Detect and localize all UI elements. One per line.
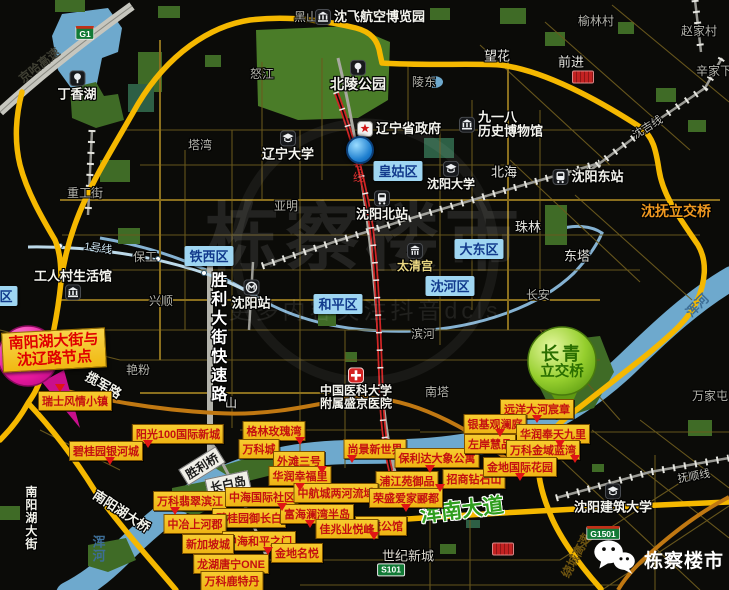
poi-label: 九一八历史博物馆 bbox=[478, 111, 543, 140]
poi-label: 北陵公园 bbox=[330, 77, 386, 92]
pointer-triangle bbox=[495, 429, 505, 437]
poi: 沈阳建筑大学 bbox=[574, 483, 652, 514]
pointer-triangle bbox=[55, 384, 65, 392]
poi: 丁香湖 bbox=[57, 70, 96, 101]
museum-icon bbox=[65, 285, 81, 301]
street-label: 塔湾 bbox=[188, 139, 212, 153]
pointer-triangle bbox=[305, 520, 315, 528]
poi-label: 中国医科大学附属盛京医院 bbox=[320, 384, 392, 410]
train-icon bbox=[552, 169, 568, 185]
museum-icon bbox=[315, 9, 331, 25]
pointer-triangle bbox=[369, 532, 379, 540]
poi: 辽宁省政府 bbox=[357, 121, 441, 137]
poi-label: 沈阳站 bbox=[231, 296, 270, 310]
street-label: 山 bbox=[225, 397, 237, 411]
project-label: 万科鹿特丹 bbox=[201, 571, 264, 590]
street-label: 怒江 bbox=[250, 68, 274, 82]
district-label: 和平区 bbox=[313, 294, 362, 314]
street-label: 保工 bbox=[133, 251, 157, 265]
poi: 沈阳东站 bbox=[552, 169, 623, 185]
school-icon bbox=[443, 161, 459, 177]
pointer-triangle bbox=[295, 437, 305, 445]
street-label: 东塔 bbox=[564, 250, 590, 265]
park-icon bbox=[69, 70, 85, 86]
poi: 沈阳北站 bbox=[356, 190, 408, 221]
pointer-triangle bbox=[277, 503, 287, 511]
pointer-triangle bbox=[425, 465, 435, 473]
road-label: 胜利大街快速路 bbox=[207, 272, 225, 405]
callout-changqing-line2: 立交桥 bbox=[540, 364, 584, 380]
road-badge bbox=[572, 71, 594, 84]
park-icon bbox=[350, 60, 366, 76]
poi: 沈飞航空博览园 bbox=[315, 9, 425, 25]
project-label: 中冶上河郡 bbox=[164, 514, 227, 534]
callout-changqing-line1: 长青 bbox=[540, 344, 584, 364]
poi: 辽宁大学 bbox=[262, 130, 314, 161]
wechat-branding: 栋察楼市 bbox=[592, 538, 724, 580]
pointer-triangle bbox=[401, 504, 411, 512]
district-label: 区 bbox=[0, 286, 18, 306]
poi: 九一八历史博物馆 bbox=[459, 111, 543, 140]
street-label: 亚明 bbox=[274, 200, 298, 214]
pointer-triangle bbox=[555, 440, 565, 448]
street-label: 陵东 bbox=[412, 76, 436, 90]
road-label: 浑河 bbox=[90, 535, 105, 563]
street-label: 南塔 bbox=[425, 386, 449, 400]
project-label: 中航城两河流域 bbox=[294, 483, 379, 503]
poi: 北陵公园 bbox=[330, 60, 386, 92]
street-label: 万家屯 bbox=[692, 390, 728, 404]
pointer-triangle bbox=[317, 466, 327, 474]
metro-icon bbox=[243, 279, 259, 295]
district-label: 铁西区 bbox=[184, 246, 233, 266]
street-label: 辛家下 bbox=[696, 65, 729, 79]
road-label: 南阳湖大街 bbox=[23, 486, 37, 551]
street-label: 兴顺 bbox=[149, 295, 173, 309]
callout-changqing: 长青 立交桥 bbox=[540, 344, 584, 380]
wechat-icon bbox=[592, 538, 638, 580]
shenyang-night-map: 栋察楼市 更多内容关注抖音dcls 黑山怒江塔湾重工街亚明保工兴顺艳粉陵东望花前… bbox=[0, 0, 729, 590]
poi-label: 沈阳北站 bbox=[356, 207, 408, 221]
poi-label: 丁香湖 bbox=[57, 87, 96, 101]
pointer-triangle bbox=[143, 440, 153, 448]
street-label: 世纪新城 bbox=[382, 550, 434, 565]
temple-icon bbox=[407, 243, 423, 259]
hospital-icon bbox=[348, 367, 364, 383]
street-label: 艳粉 bbox=[126, 364, 150, 378]
train-icon bbox=[374, 190, 390, 206]
poi: 沈阳大学 bbox=[427, 161, 475, 191]
pointer-triangle bbox=[170, 507, 180, 515]
poi-label: 沈阳建筑大学 bbox=[574, 500, 652, 514]
district-label: 大东区 bbox=[454, 239, 503, 259]
school-icon bbox=[605, 483, 621, 499]
poi-label: 辽宁省政府 bbox=[376, 122, 441, 136]
road-badge bbox=[492, 543, 514, 556]
street-label: 滨河 bbox=[411, 328, 435, 342]
street-label: 珠林 bbox=[515, 221, 541, 236]
pointer-triangle bbox=[435, 484, 445, 492]
road-badge: G1 bbox=[75, 26, 94, 40]
museum-icon bbox=[459, 117, 475, 133]
poi: 工人村生活馆 bbox=[34, 269, 112, 300]
poi-label: 沈阳大学 bbox=[427, 178, 475, 191]
poi: 中国医科大学附属盛京医院 bbox=[320, 367, 392, 410]
poi-label: 辽宁大学 bbox=[262, 147, 314, 161]
poi-label: 沈阳东站 bbox=[571, 170, 623, 184]
project-label: 新加坡城 bbox=[182, 534, 234, 554]
pointer-triangle bbox=[532, 415, 542, 423]
pointer-triangle bbox=[347, 455, 357, 463]
street-label: 望花 bbox=[484, 50, 510, 65]
street-label: 前进 bbox=[558, 56, 584, 71]
school-icon bbox=[280, 130, 296, 146]
pointer-triangle bbox=[570, 455, 580, 463]
road-label: 沈抚立交桥 bbox=[641, 203, 711, 219]
wechat-brand-label: 栋察楼市 bbox=[644, 546, 724, 573]
pointer-triangle bbox=[515, 473, 525, 481]
pointer-triangle bbox=[105, 457, 115, 465]
poi-label: 工人村生活馆 bbox=[34, 269, 112, 283]
district-label: 皇姑区 bbox=[373, 161, 422, 181]
project-label: 金地名悦 bbox=[271, 543, 323, 563]
street-label: 长安 bbox=[526, 289, 550, 303]
poi: 沈阳站 bbox=[231, 279, 270, 310]
poi-label: 太清宫 bbox=[397, 260, 433, 273]
street-label: 重工街 bbox=[67, 187, 103, 201]
callout-nanyanghu-note: 南阳湖大街与 沈辽路节点 bbox=[1, 327, 107, 372]
road-badge: S101 bbox=[377, 563, 405, 576]
pointer-triangle bbox=[295, 483, 305, 491]
poi-label: 沈飞航空博览园 bbox=[334, 10, 425, 24]
pointer-triangle bbox=[263, 547, 273, 555]
street-label: 榆林村 bbox=[578, 15, 614, 29]
poi: 太清宫 bbox=[397, 243, 433, 273]
street-label: 赵家村 bbox=[681, 25, 717, 39]
district-label: 沈河区 bbox=[425, 276, 474, 296]
metro-marker-icon bbox=[346, 136, 374, 164]
street-label: 北海 bbox=[491, 166, 517, 181]
callout-line2: 沈辽路节点 bbox=[9, 348, 100, 370]
gov-icon bbox=[357, 121, 373, 137]
project-label: 瑞士风情小镇 bbox=[38, 391, 112, 411]
